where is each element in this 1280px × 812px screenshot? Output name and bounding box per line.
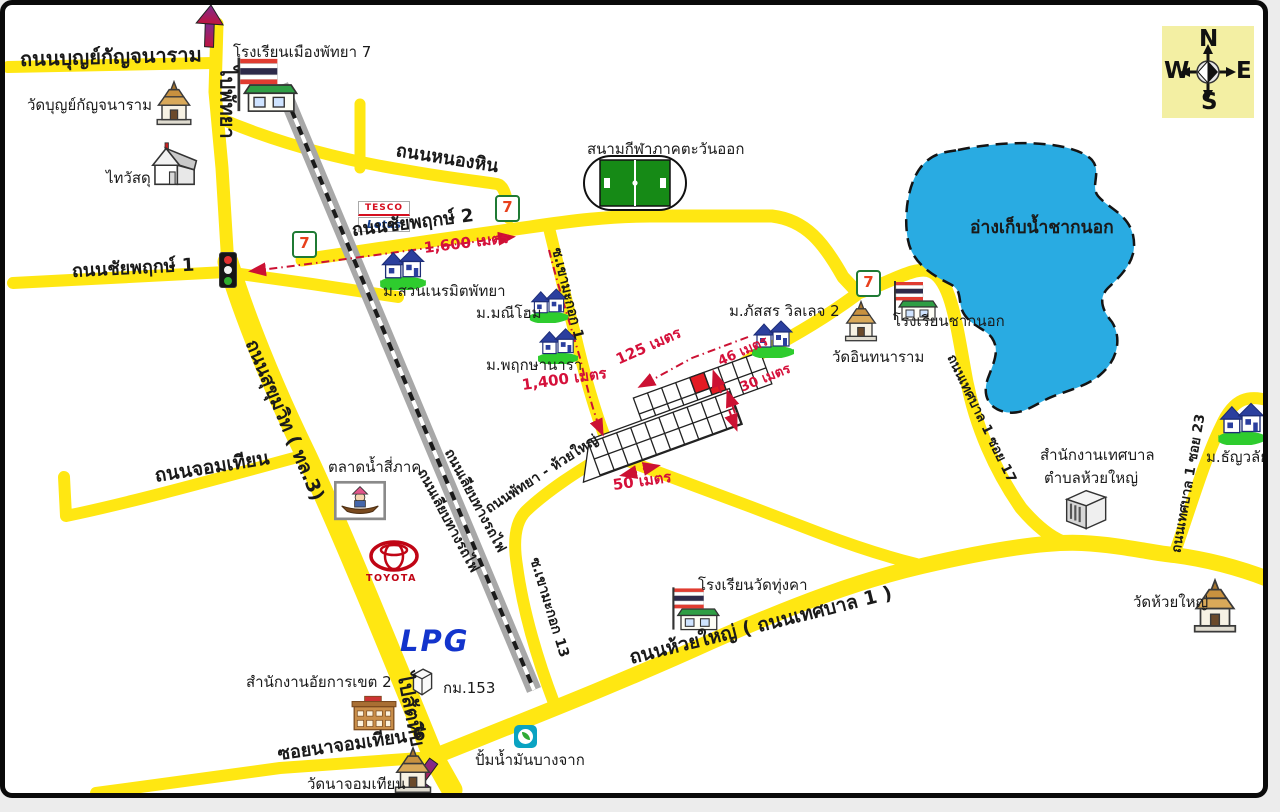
place-label-thai-watsadu: ไทวัสดุ xyxy=(106,170,151,187)
compass-east-label: E xyxy=(1236,58,1252,84)
place-label-thanwalai: ม.ธัญวลัย xyxy=(1206,449,1269,466)
compass-rose: N W E S xyxy=(1162,26,1254,118)
seven-eleven-label: 7 xyxy=(502,198,512,216)
seven-eleven-icon: 7 xyxy=(292,231,317,258)
outer-margin-bottom xyxy=(0,798,1280,812)
traffic-light-icon xyxy=(219,252,237,288)
lpg-label: LPG xyxy=(400,624,470,658)
place-label-suan-neramit: ม.สวนเนรมิตพัทยา xyxy=(383,283,506,300)
seven-eleven-icon: 7 xyxy=(856,270,881,297)
compass-north-label: N xyxy=(1199,26,1218,52)
road-label-boonkanjanaram: ถนนบุญย์กัญจนาราม xyxy=(20,43,202,71)
seven-eleven-icon: 7 xyxy=(495,195,520,222)
place-label-tessaban-office-2: ตำบลห้วยใหญ่ xyxy=(1044,470,1138,487)
place-label-school-pattaya7: โรงเรียนเมืองพัทยา 7 xyxy=(233,44,371,61)
place-label-chaknok: โรงเรียนชากนอก xyxy=(893,313,1005,330)
seven-eleven-label: 7 xyxy=(863,273,873,291)
place-label-wat-thungka: โรงเรียนวัดทุ่งคา xyxy=(698,577,808,594)
place-label-manee-home: ม.มณีโฮม xyxy=(476,305,542,322)
toyota-icon xyxy=(368,539,420,577)
toyota-label: TOYOTA xyxy=(366,573,417,584)
place-label-tessaban-office-1: สำนักงานเทศบาล xyxy=(1040,447,1155,464)
road-label-to-pattaya: ไปพัทยา xyxy=(216,67,239,139)
place-label-passorn: ม.ภัสสร วิลเลจ 2 xyxy=(729,303,840,320)
place-label-floating-market: ตลาดน้ำสี่ภาค xyxy=(328,459,421,476)
outer-margin-right xyxy=(1268,0,1280,812)
place-label-stadium: สนามกีฬาภาคตะวันออก xyxy=(587,141,744,158)
stadium-field-icon xyxy=(584,156,686,210)
place-label-reservoir: อ่างเก็บน้ำชากนอก xyxy=(970,218,1114,238)
place-label-wat-huaiyai: วัดห้วยใหญ่ xyxy=(1133,594,1208,611)
compass-south-label: S xyxy=(1201,89,1218,115)
bangchak-gas-icon xyxy=(514,725,537,748)
floating-market-icon xyxy=(335,482,384,519)
traffic-light-middle xyxy=(224,266,232,274)
traffic-light-red xyxy=(224,256,232,264)
map-graphics xyxy=(0,0,1280,812)
attorney-office-icon xyxy=(352,696,396,729)
place-label-wat-boonkanjanaram: วัดบุญย์กัญจนาราม xyxy=(27,97,152,114)
place-label-bangchak: ปั้มน้ำมันบางจาก xyxy=(475,752,585,769)
place-label-wat-najomtien: วัดนาจอมเทียน xyxy=(307,776,406,793)
compass-west-label: W xyxy=(1164,58,1189,84)
seven-eleven-label: 7 xyxy=(299,234,309,252)
traffic-light-green xyxy=(224,277,232,285)
place-label-inthanaram: วัดอินทนาราม xyxy=(832,349,924,366)
place-label-km153: กม.153 xyxy=(443,680,495,697)
place-label-attorney: สำนักงานอัยการเขต 2 xyxy=(246,674,392,691)
map-canvas: ถนนบุญย์กัญจนาราม ไปพัทยา วัดบุญย์กัญจนา… xyxy=(0,0,1280,812)
office-icon-tessaban xyxy=(1067,491,1106,529)
